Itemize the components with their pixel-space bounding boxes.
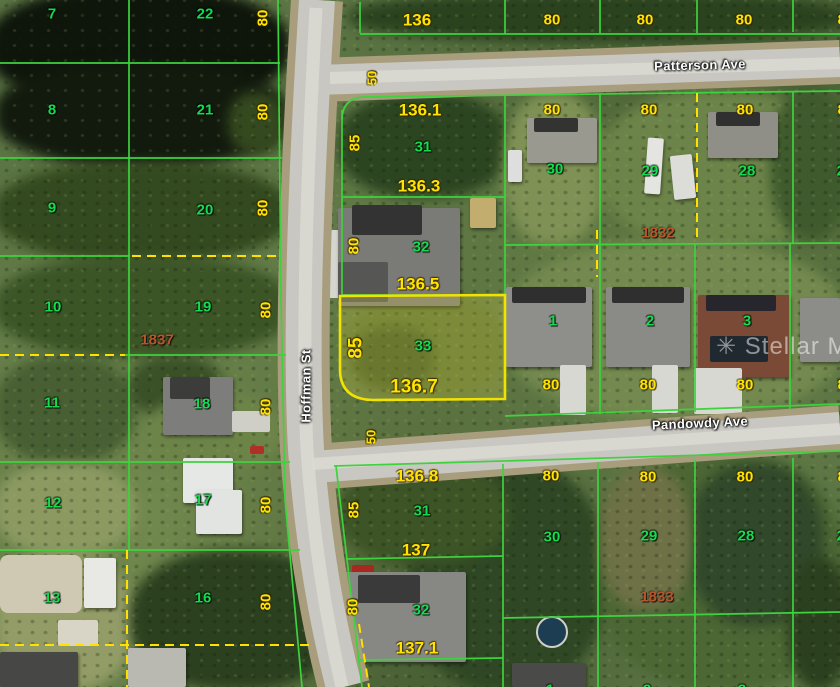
dimension-80: 80 [259, 399, 274, 416]
dimension-80: 80 [346, 599, 361, 616]
dimension-136-8: 136.8 [396, 468, 439, 485]
aerial-map: 7228219201019111812171316313029282732331… [0, 0, 840, 687]
lot-number-12: 12 [45, 496, 62, 511]
dimension-136: 136 [403, 12, 431, 29]
lot-number-32: 32 [413, 240, 430, 255]
plat-ref-1837: 1837 [140, 333, 173, 348]
dimension-80: 80 [640, 378, 657, 393]
lot-number-31: 31 [415, 140, 432, 155]
plat-ref-1832: 1832 [641, 226, 674, 241]
dimension-136-1: 136.1 [399, 102, 442, 119]
lot-number-28: 28 [739, 164, 756, 179]
dimension-80: 80 [737, 470, 754, 485]
lot-number-21: 21 [197, 103, 214, 118]
lot-number-30: 30 [547, 162, 564, 177]
lot-number-2: 2 [643, 683, 651, 687]
lot-number-11: 11 [44, 396, 60, 411]
dimension-85: 85 [347, 337, 366, 358]
lot-number-33: 33 [415, 339, 432, 354]
lot-number-1: 1 [549, 314, 557, 329]
lot-number-10: 10 [45, 300, 62, 315]
lot-number-31: 31 [414, 504, 431, 519]
street-name-pandowdy-ave: Pandowdy Ave [652, 414, 749, 431]
dimension-80: 80 [737, 378, 754, 393]
dimension-80: 80 [543, 378, 560, 393]
plat-ref-1833: 1833 [640, 590, 673, 605]
dimension-137: 137 [402, 542, 430, 559]
lot-number-19: 19 [195, 300, 212, 315]
lot-number-22: 22 [197, 7, 214, 22]
dimension-85: 85 [348, 135, 363, 152]
dimension-80: 80 [736, 13, 753, 28]
lot-number-1: 1 [546, 683, 554, 687]
dimension-136-7: 136.7 [390, 378, 438, 397]
lot-number-29: 29 [641, 529, 658, 544]
dimension-80: 80 [256, 10, 271, 27]
dimension-80: 80 [256, 104, 271, 121]
dimension-80: 80 [544, 13, 561, 28]
lot-number-3: 3 [738, 683, 746, 687]
lot-number-8: 8 [48, 103, 56, 118]
dimension-136-5: 136.5 [397, 276, 440, 293]
lot-number-20: 20 [197, 203, 214, 218]
lot-number-28: 28 [738, 529, 755, 544]
street-name-hoffman-st: Hoffman St [300, 349, 313, 422]
lot-number-13: 13 [44, 591, 61, 606]
lot-number-17: 17 [195, 493, 212, 508]
lot-number-16: 16 [195, 591, 212, 606]
lot-number-3: 3 [743, 314, 751, 329]
dimension-80: 80 [259, 302, 274, 319]
lot-number-32: 32 [413, 603, 430, 618]
lot-number-9: 9 [48, 201, 56, 216]
dimension-80: 80 [637, 13, 654, 28]
dimension-80: 80 [259, 497, 274, 514]
dimension-80: 80 [544, 103, 561, 118]
dimension-80: 80 [640, 470, 657, 485]
dimension-80: 80 [259, 594, 274, 611]
dimension-136-3: 136.3 [398, 178, 441, 195]
dimension-80: 80 [256, 200, 271, 217]
lot-number-27: 27 [837, 529, 840, 544]
dimension-50: 50 [365, 430, 378, 444]
dimension-80: 80 [543, 469, 560, 484]
street-name-patterson-ave: Patterson Ave [654, 57, 746, 72]
dimension-80: 80 [641, 103, 658, 118]
dimension-137-1: 137.1 [396, 640, 439, 657]
dimension-80: 80 [347, 238, 362, 255]
dimension-50: 50 [366, 71, 379, 85]
lot-number-18: 18 [194, 397, 211, 412]
lot-number-30: 30 [544, 530, 561, 545]
lot-number-27: 27 [837, 164, 840, 179]
watermark--stellar-mls: ✳ Stellar MLS [716, 335, 840, 359]
lot-number-7: 7 [48, 7, 56, 22]
lot-number-2: 2 [646, 314, 654, 329]
dimension-85: 85 [347, 502, 362, 519]
lot-number-29: 29 [642, 164, 659, 179]
dimension-80: 80 [737, 103, 754, 118]
